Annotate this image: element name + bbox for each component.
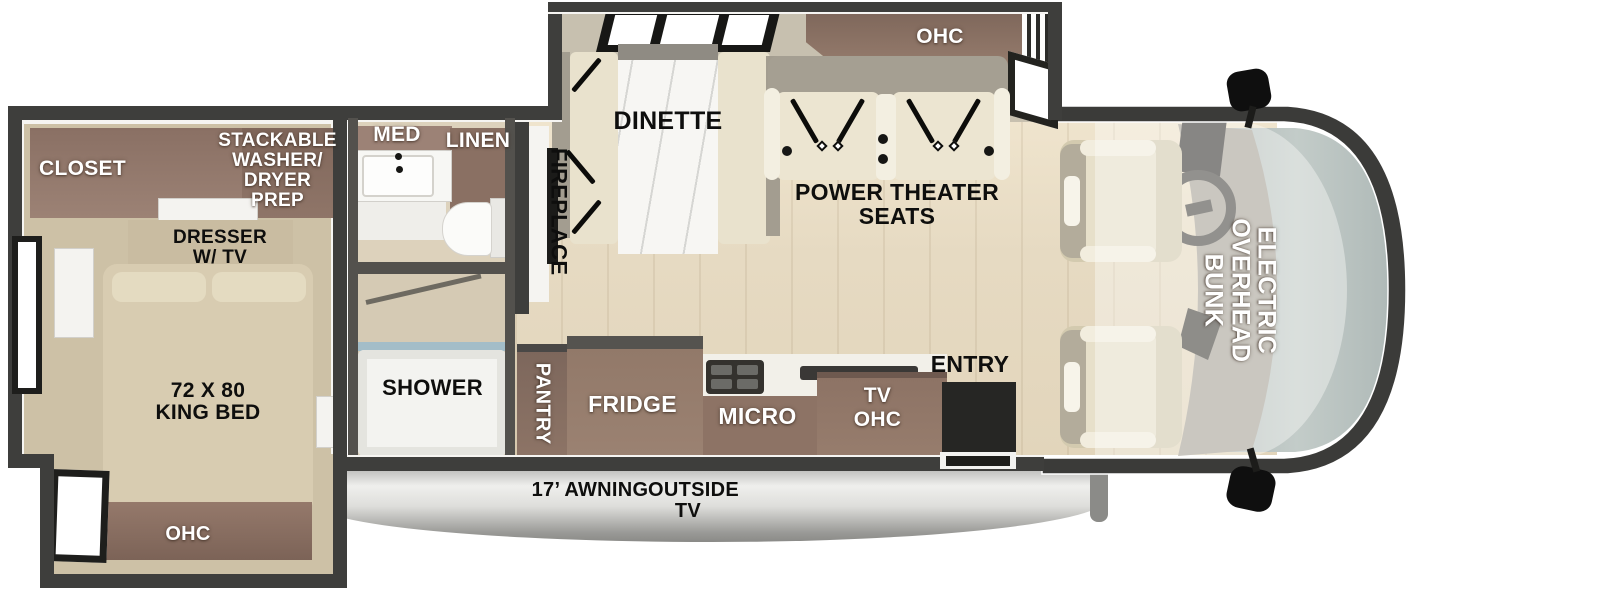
closet-label: CLOSET [30,158,135,180]
wall-bedroom-bottom [40,574,347,588]
dinette-table [618,44,718,254]
entry-step [946,456,1010,466]
bedroom-window-lower-left [48,469,109,563]
med-label: MED [362,124,432,146]
bed-pillow-right [212,272,306,302]
dinette-table-edge [618,44,718,60]
bedroom-window-left [12,236,42,394]
fireplace-label: FIREPLACE [547,132,570,292]
theater-armrest-right [994,88,1010,180]
rv-floorplan: 17’ AWNING OUTSIDE TV [0,0,1600,596]
toilet-tank [490,198,506,258]
nightstand-left [54,248,94,338]
cupholder-dot-1 [782,146,792,156]
overhead-bunk-label: ELECTRIC OVERHEAD BUNK [1201,190,1280,390]
cupholder-dot-4 [984,146,994,156]
faucet-dot-2 [396,166,403,173]
cupholder-dot-2 [878,134,888,144]
toilet-bowl [442,202,492,256]
dinette-label: DINETTE [593,108,743,135]
faucet-dot-1 [395,153,402,160]
awning-label: 17’ AWNING [510,480,670,501]
outside-tv-label: OUTSIDE TV [648,480,728,522]
cupholder-dot-3 [878,154,888,164]
theater-seats-label: POWER THEATER SEATS [787,180,1007,229]
wall-slideout-top [548,2,1062,14]
wall-bath-right [505,118,515,455]
bath-sink-bowl [362,155,434,197]
fridge-label: FRIDGE [580,392,685,416]
linen-label: LINEN [433,130,523,152]
wall-bedroom-left-lower [40,454,54,588]
wall-top [8,106,562,122]
king-bed-label: 72 X 80 KING BED [128,380,288,425]
pantry-label: PANTRY [531,344,552,464]
living-ohc-label: OHC [900,26,980,48]
dinette-bench-right [718,52,770,244]
entry-label: ENTRY [925,352,1015,376]
bed-pillow-left [112,272,206,302]
bath-sink-front [358,202,446,240]
tv-ohc-label: TV OHC [840,384,915,432]
shower-label: SHOWER [360,376,505,399]
wall-bath-middle [348,262,515,274]
entry-door [942,382,1016,454]
micro-label: MICRO [710,404,805,428]
cooktop [706,360,764,394]
wall-slideout-left [548,2,562,120]
washer-dryer-label: STACKABLE WASHER/ DRYER PREP [205,131,350,212]
theater-armrest-left [764,88,780,180]
wall-slideout-right [1048,2,1062,120]
shower-pan [358,350,506,456]
bedroom-ohc-label: OHC [148,524,228,545]
dresser-label: DRESSER W/ TV [150,228,290,268]
